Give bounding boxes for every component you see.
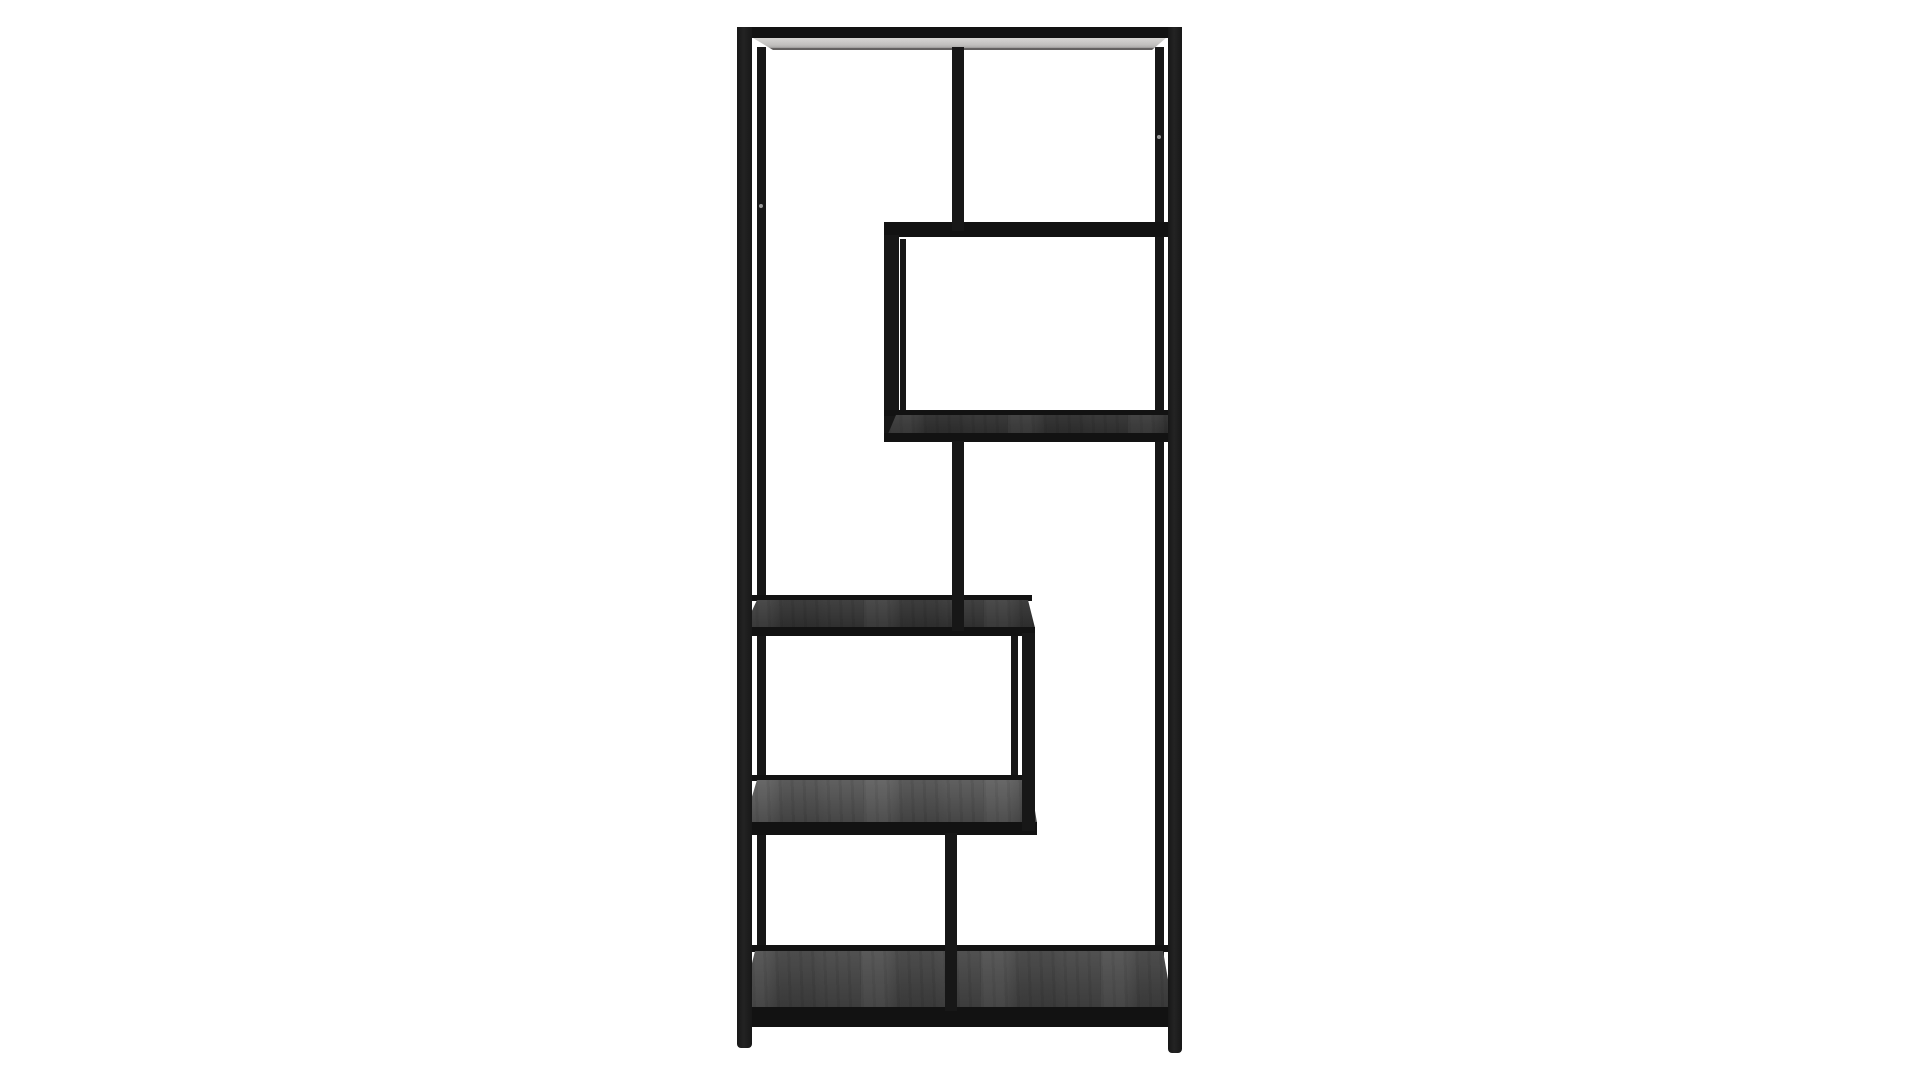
top-shelf-front-edge bbox=[737, 27, 1182, 38]
upper-box-left-panel-back-edge bbox=[900, 239, 906, 413]
center-shelf-surface bbox=[744, 600, 1035, 628]
lower-box-right-panel bbox=[1022, 633, 1035, 831]
lower-left-shelf-surface bbox=[744, 780, 1037, 823]
lower-divider bbox=[945, 833, 957, 1011]
center-shelf-front-edge bbox=[740, 627, 1035, 636]
left-front-leg bbox=[737, 27, 752, 1048]
lower-left-shelf-front-edge bbox=[740, 822, 1037, 835]
middle-right-shelf-surface bbox=[888, 415, 1178, 434]
bottom-shelf-front-edge bbox=[737, 1007, 1182, 1027]
upper-right-shelf bbox=[884, 222, 1182, 237]
product-photo bbox=[0, 0, 1920, 1080]
bottom-shelf-back-edge bbox=[744, 945, 1174, 952]
right-back-leg bbox=[1155, 47, 1164, 992]
middle-divider bbox=[952, 441, 964, 631]
right-front-leg bbox=[1168, 27, 1182, 1053]
left-back-leg bbox=[757, 47, 766, 992]
screw-hole-left bbox=[759, 204, 763, 208]
bottom-shelf-surface bbox=[741, 951, 1173, 1008]
upper-divider bbox=[952, 47, 964, 231]
screw-hole-right bbox=[1157, 135, 1161, 139]
middle-right-shelf-front-edge bbox=[884, 433, 1172, 442]
